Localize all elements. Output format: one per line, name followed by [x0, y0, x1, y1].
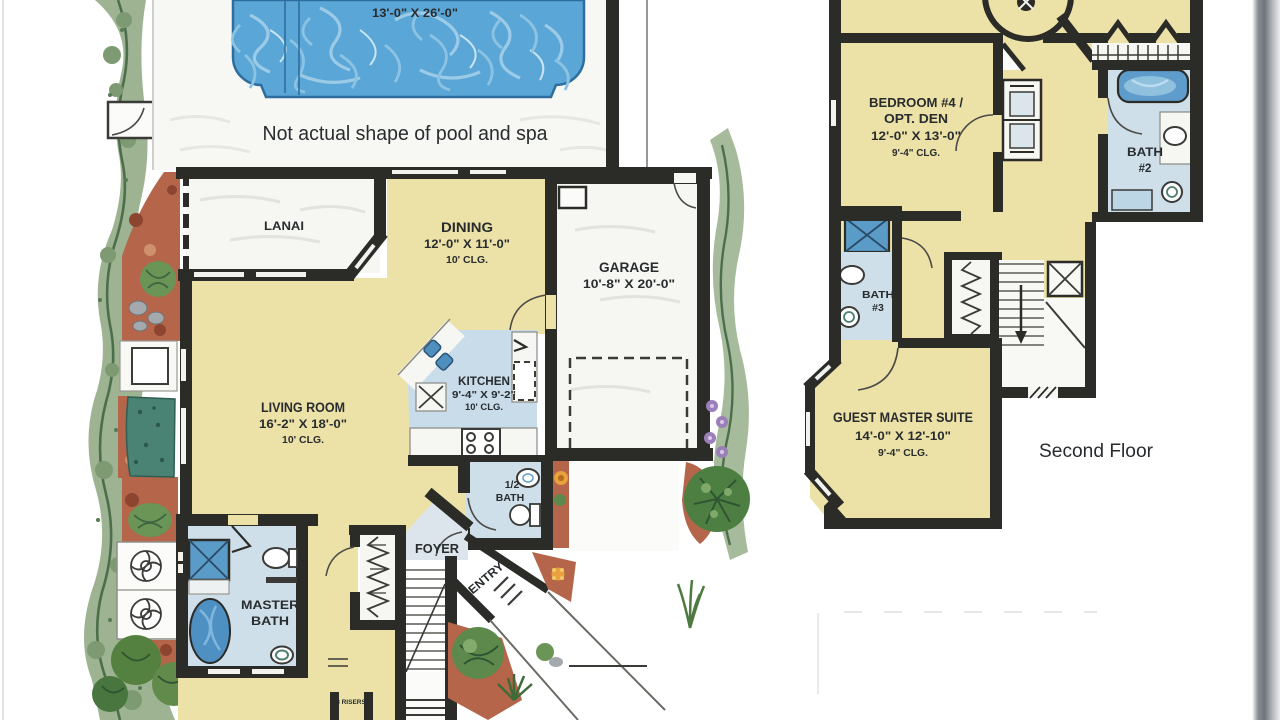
svg-text:10' CLG.: 10' CLG.	[282, 435, 324, 446]
svg-text:#3: #3	[872, 302, 884, 314]
svg-text:13'-0" X 26'-0": 13'-0" X 26'-0"	[372, 6, 458, 20]
svg-text:DINING: DINING	[441, 220, 493, 235]
svg-text:FOYER: FOYER	[415, 542, 459, 556]
svg-text:LANAI: LANAI	[264, 219, 304, 233]
svg-text:LIVING ROOM: LIVING ROOM	[261, 400, 345, 415]
svg-text:BATH: BATH	[1127, 147, 1163, 159]
svg-text:10' CLG.: 10' CLG.	[446, 255, 488, 266]
svg-text:GUEST MASTER SUITE: GUEST MASTER SUITE	[833, 409, 973, 425]
svg-text:BATH: BATH	[496, 492, 524, 504]
svg-text:#2: #2	[1139, 163, 1152, 175]
svg-text:Not actual shape of pool and s: Not actual shape of pool and spa	[263, 122, 549, 145]
svg-text:9'-4" CLG.: 9'-4" CLG.	[892, 148, 940, 159]
svg-text:3 RISERS: 3 RISERS	[336, 699, 366, 706]
svg-text:12'-0" X 13'-0": 12'-0" X 13'-0"	[871, 131, 961, 143]
svg-text:9'-4" X 9'-2": 9'-4" X 9'-2"	[452, 389, 516, 401]
svg-text:BEDROOM #4 /: BEDROOM #4 /	[869, 96, 964, 110]
svg-text:10'-8" X 20'-0": 10'-8" X 20'-0"	[583, 279, 675, 291]
svg-text:MASTER: MASTER	[241, 598, 299, 612]
svg-text:KITCHEN: KITCHEN	[458, 374, 510, 388]
svg-text:16'-2" X 18'-0": 16'-2" X 18'-0"	[259, 419, 347, 431]
svg-text:BATH: BATH	[251, 614, 289, 628]
svg-text:Second Floor: Second Floor	[1039, 440, 1153, 462]
svg-text:12'-0" X 11'-0": 12'-0" X 11'-0"	[424, 239, 510, 251]
svg-text:GARAGE: GARAGE	[599, 260, 659, 275]
svg-text:9'-4" CLG.: 9'-4" CLG.	[878, 448, 928, 459]
svg-text:BATH: BATH	[862, 289, 894, 301]
svg-text:14'-0" X 12'-10": 14'-0" X 12'-10"	[855, 429, 951, 443]
svg-text:10' CLG.: 10' CLG.	[465, 402, 503, 413]
svg-text:1/2: 1/2	[505, 479, 520, 491]
svg-text:OPT. DEN: OPT. DEN	[884, 112, 948, 126]
